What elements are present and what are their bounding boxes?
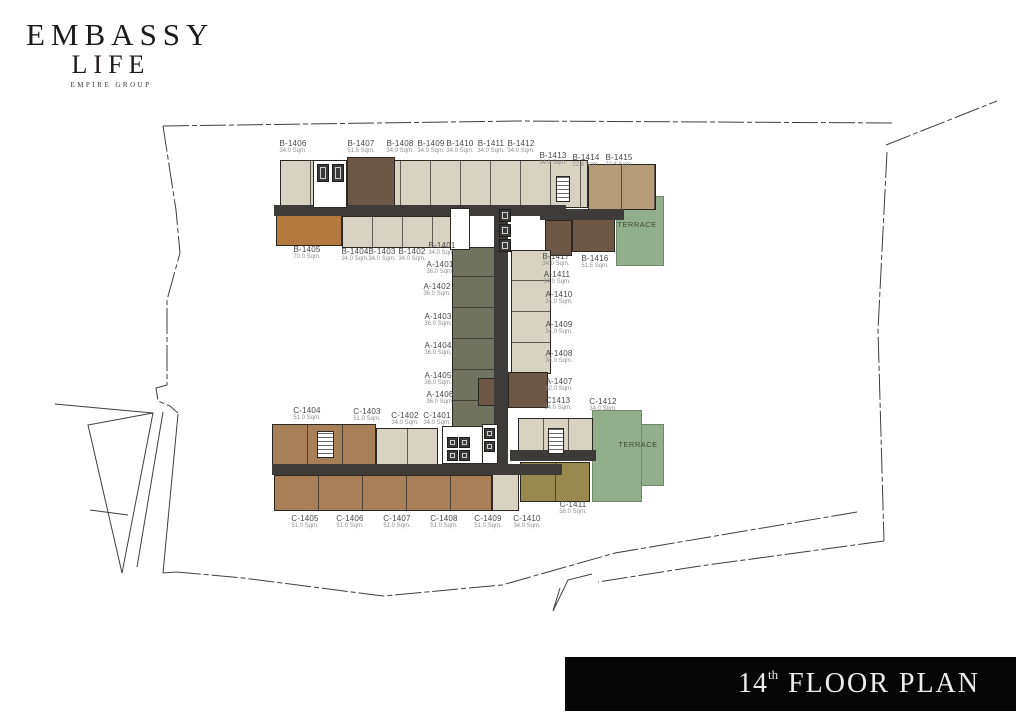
unit-label-A-1406: A-140636.0 Sqm.	[426, 390, 453, 406]
unit-name: B-1413	[539, 151, 566, 160]
unit-area: 22.6 Sqm.	[605, 162, 632, 169]
unit-area: 34.0 Sqm.	[513, 523, 540, 530]
unit-C-1410	[492, 473, 519, 511]
unit-name: B-1410	[446, 139, 473, 148]
lift-icon	[447, 437, 458, 448]
corridor-north-east	[540, 209, 624, 220]
unit-name: A-1407	[545, 377, 572, 386]
unit-label-A-1404: A-140436.0 Sqm.	[424, 341, 451, 357]
unit-label-B-1409: B-140934.0 Sqm.	[417, 139, 444, 155]
unit-name: B-1416	[581, 254, 608, 263]
unit-label-C-1407: C-140751.0 Sqm.	[383, 514, 410, 530]
unit-label-B-1401: B-140134.0 Sqm.	[428, 241, 455, 257]
unit-label-C1413: C141334.0 Sqm.	[544, 396, 571, 412]
unit-area: 34.0 Sqm.	[423, 420, 450, 427]
unit-area: 51.0 Sqm.	[474, 523, 501, 530]
unit-A-1407-east	[508, 372, 548, 408]
unit-area: 34.0 Sqm.	[544, 405, 571, 412]
units-B-1414-B-1415	[588, 164, 656, 210]
unit-label-C-1408: C-140851.0 Sqm.	[430, 514, 457, 530]
lift-icon	[499, 239, 511, 252]
unit-area: 34.0 Sqm.	[386, 148, 413, 155]
unit-area: 51.0 Sqm.	[430, 523, 457, 530]
unit-name: C-1402	[391, 411, 418, 420]
unit-name: A-1409	[545, 320, 572, 329]
unit-area: 34.0 Sqm.	[398, 256, 425, 263]
lift-icon	[459, 437, 470, 448]
unit-area: 34.0 Sqm.	[368, 256, 395, 263]
lift-icon	[447, 450, 458, 461]
unit-name: C-1408	[430, 514, 457, 523]
unit-label-A-1402: A-140236.0 Sqm.	[423, 282, 450, 298]
lift-icon	[317, 164, 329, 182]
unit-area: 36.0 Sqm.	[424, 380, 451, 387]
unit-area: 51.0 Sqm.	[336, 523, 363, 530]
unit-name: B-1402	[398, 247, 425, 256]
unit-area: 34.0 Sqm.	[545, 358, 572, 365]
unit-name: A-1406	[426, 390, 453, 399]
unit-label-C-1401: C-140134.0 Sqm.	[423, 411, 450, 427]
unit-area: 36.0 Sqm.	[424, 350, 451, 357]
unit-name: A-1410	[545, 290, 572, 299]
unit-area: 34.0 Sqm.	[341, 256, 368, 263]
unit-area: 51.5 Sqm.	[581, 263, 608, 270]
unit-name: C-1410	[513, 514, 540, 523]
unit-area: 36.0 Sqm.	[424, 321, 451, 328]
unit-area: 34.0 Sqm.	[417, 148, 444, 155]
floor-plan-drawing: B-140634.0 Sqm.B-140751.5 Sqm.B-140834.0…	[0, 0, 1016, 718]
unit-area: 51.0 Sqm.	[293, 415, 320, 422]
unit-name: A-1403	[424, 312, 451, 321]
south-west-stair-core	[317, 431, 334, 458]
lift-icon	[499, 224, 511, 237]
unit-area: 36.0 Sqm.	[426, 399, 453, 406]
unit-label-C-1410: C-141034.0 Sqm.	[513, 514, 540, 530]
unit-name: C-1407	[383, 514, 410, 523]
unit-name: B-1409	[417, 139, 444, 148]
lift-icon	[484, 428, 495, 439]
unit-label-C-1412: C-141234.0 Sqm.	[589, 397, 616, 413]
unit-name: B-1404	[341, 247, 368, 256]
unit-label-B-1407: B-140751.5 Sqm.	[347, 139, 374, 155]
unit-area: 34.0 Sqm.	[391, 420, 418, 427]
unit-area: 51.0 Sqm.	[383, 523, 410, 530]
unit-name: C-1403	[353, 407, 380, 416]
unit-name: C-1409	[474, 514, 501, 523]
unit-label-A-1403: A-140336.0 Sqm.	[424, 312, 451, 328]
unit-B-1407	[347, 157, 395, 208]
unit-name: B-1414	[572, 153, 599, 162]
south-wing-upper-cream-units	[376, 428, 438, 466]
lift-icon	[332, 164, 344, 182]
unit-label-B-1408: B-140834.0 Sqm.	[386, 139, 413, 155]
unit-name: B-1403	[368, 247, 395, 256]
unit-area: 34.0 Sqm.	[542, 261, 569, 268]
unit-name: B-1401	[428, 241, 455, 250]
unit-area: 34.0 Sqm.	[589, 406, 616, 413]
terrace-label: TERRACE	[618, 440, 657, 449]
unit-label-A-1408: A-140834.0 Sqm.	[545, 349, 572, 365]
unit-label-A-1411: A-141134.0 Sqm.	[543, 270, 570, 286]
unit-name: C-1406	[336, 514, 363, 523]
unit-area: 34.0 Sqm.	[428, 250, 455, 257]
unit-name: C-1412	[589, 397, 616, 406]
unit-name: C-1405	[291, 514, 318, 523]
unit-name: A-1404	[424, 341, 451, 350]
unit-name: A-1402	[423, 282, 450, 291]
floor-number: 14	[738, 668, 768, 700]
unit-name: C-1411	[559, 500, 586, 509]
unit-name: A-1405	[424, 371, 451, 380]
unit-B-1405	[276, 214, 342, 246]
unit-label-B-1406: B-140634.0 Sqm.	[279, 139, 306, 155]
unit-label-A-1405: A-140536.0 Sqm.	[424, 371, 451, 387]
unit-area: 34.0 Sqm.	[545, 299, 572, 306]
unit-label-C-1404: C-140451.0 Sqm.	[293, 406, 320, 422]
unit-label-C-1403: C-140351.0 Sqm.	[353, 407, 380, 423]
unit-label-B-1405: B-140570.0 Sqm.	[293, 245, 320, 261]
unit-name: B-1406	[279, 139, 306, 148]
unit-label-B-1403: B-140334.0 Sqm.	[368, 247, 395, 263]
unit-area: 34.0 Sqm.	[279, 148, 306, 155]
unit-area: 36.0 Sqm.	[426, 269, 453, 276]
unit-name: B-1405	[293, 245, 320, 254]
unit-label-A-1407: A-140752.0 Sqm.	[545, 377, 572, 393]
unit-area: 51.5 Sqm.	[347, 148, 374, 155]
unit-area: 34.0 Sqm.	[543, 279, 570, 286]
unit-name: A-1401	[426, 260, 453, 269]
unit-label-C-1411: C-141158.0 Sqm.	[559, 500, 586, 516]
unit-label-C-1402: C-140234.0 Sqm.	[391, 411, 418, 427]
unit-label-B-1404: B-140434.0 Sqm.	[341, 247, 368, 263]
unit-label-B-1402: B-140234.0 Sqm.	[398, 247, 425, 263]
unit-label-B-1417: B-141734.0 Sqm.	[542, 252, 569, 268]
lift-icon	[499, 209, 511, 222]
unit-label-B-1410: B-141034.0 Sqm.	[446, 139, 473, 155]
unit-name: B-1407	[347, 139, 374, 148]
lift-icon	[459, 450, 470, 461]
unit-name: B-1417	[542, 252, 569, 261]
terrace-south-step	[641, 424, 664, 486]
floor-plan-banner: 14 th FLOOR PLAN	[565, 657, 1016, 711]
unit-label-C-1406: C-140651.0 Sqm.	[336, 514, 363, 530]
unit-label-A-1410: A-141034.0 Sqm.	[545, 290, 572, 306]
unit-name: B-1408	[386, 139, 413, 148]
unit-area: 51.0 Sqm.	[291, 523, 318, 530]
unit-area: 58.0 Sqm.	[559, 509, 586, 516]
unit-area: 52.0 Sqm.	[545, 386, 572, 393]
unit-area: 34.0 Sqm.	[539, 160, 566, 167]
banner-title: FLOOR PLAN	[788, 668, 980, 700]
unit-label-B-1415: B-141522.6 Sqm.	[605, 153, 632, 169]
unit-area: 36.0 Sqm.	[423, 291, 450, 298]
unit-area: 34.0 Sqm.	[507, 148, 534, 155]
unit-label-B-1416: B-141651.5 Sqm.	[581, 254, 608, 270]
south-wing-lower-units	[274, 475, 492, 511]
unit-label-B-1414: B-141422.6 Sqm.	[572, 153, 599, 169]
terrace-south	[592, 410, 642, 502]
unit-label-B-1411: B-141134.0 Sqm.	[477, 139, 504, 155]
unit-label-B-1412: B-141234.0 Sqm.	[507, 139, 534, 155]
unit-label-A-1409: A-140934.0 Sqm.	[545, 320, 572, 336]
unit-name: A-1411	[543, 270, 570, 279]
unit-name: B-1412	[507, 139, 534, 148]
floor-plan-page: EMBASSY LIFE EMPIRE GROUP B-140634.0 Sqm…	[0, 0, 1016, 718]
unit-area: 34.0 Sqm.	[446, 148, 473, 155]
unit-name: C-1401	[423, 411, 450, 420]
unit-label-C-1409: C-140951.0 Sqm.	[474, 514, 501, 530]
unit-area: 70.0 Sqm.	[293, 254, 320, 261]
floor-number-suffix: th	[768, 670, 778, 680]
unit-area: 34.0 Sqm.	[477, 148, 504, 155]
unit-area: 34.0 Sqm.	[545, 329, 572, 336]
unit-area: 51.0 Sqm.	[353, 416, 380, 423]
unit-label-A-1401: A-140136.0 Sqm.	[426, 260, 453, 276]
terrace-label: TERRACE	[617, 220, 656, 229]
north-east-stair-core	[556, 176, 570, 202]
corridor-south	[272, 464, 562, 475]
unit-label-B-1413: B-141334.0 Sqm.	[539, 151, 566, 167]
unit-area: 22.6 Sqm.	[572, 162, 599, 169]
unit-name: C1413	[544, 396, 571, 405]
unit-name: B-1411	[477, 139, 504, 148]
lift-icon	[484, 441, 495, 452]
unit-name: B-1415	[605, 153, 632, 162]
south-east-stair-core	[548, 428, 564, 454]
unit-name: C-1404	[293, 406, 320, 415]
unit-name: A-1408	[545, 349, 572, 358]
unit-label-C-1405: C-140551.0 Sqm.	[291, 514, 318, 530]
